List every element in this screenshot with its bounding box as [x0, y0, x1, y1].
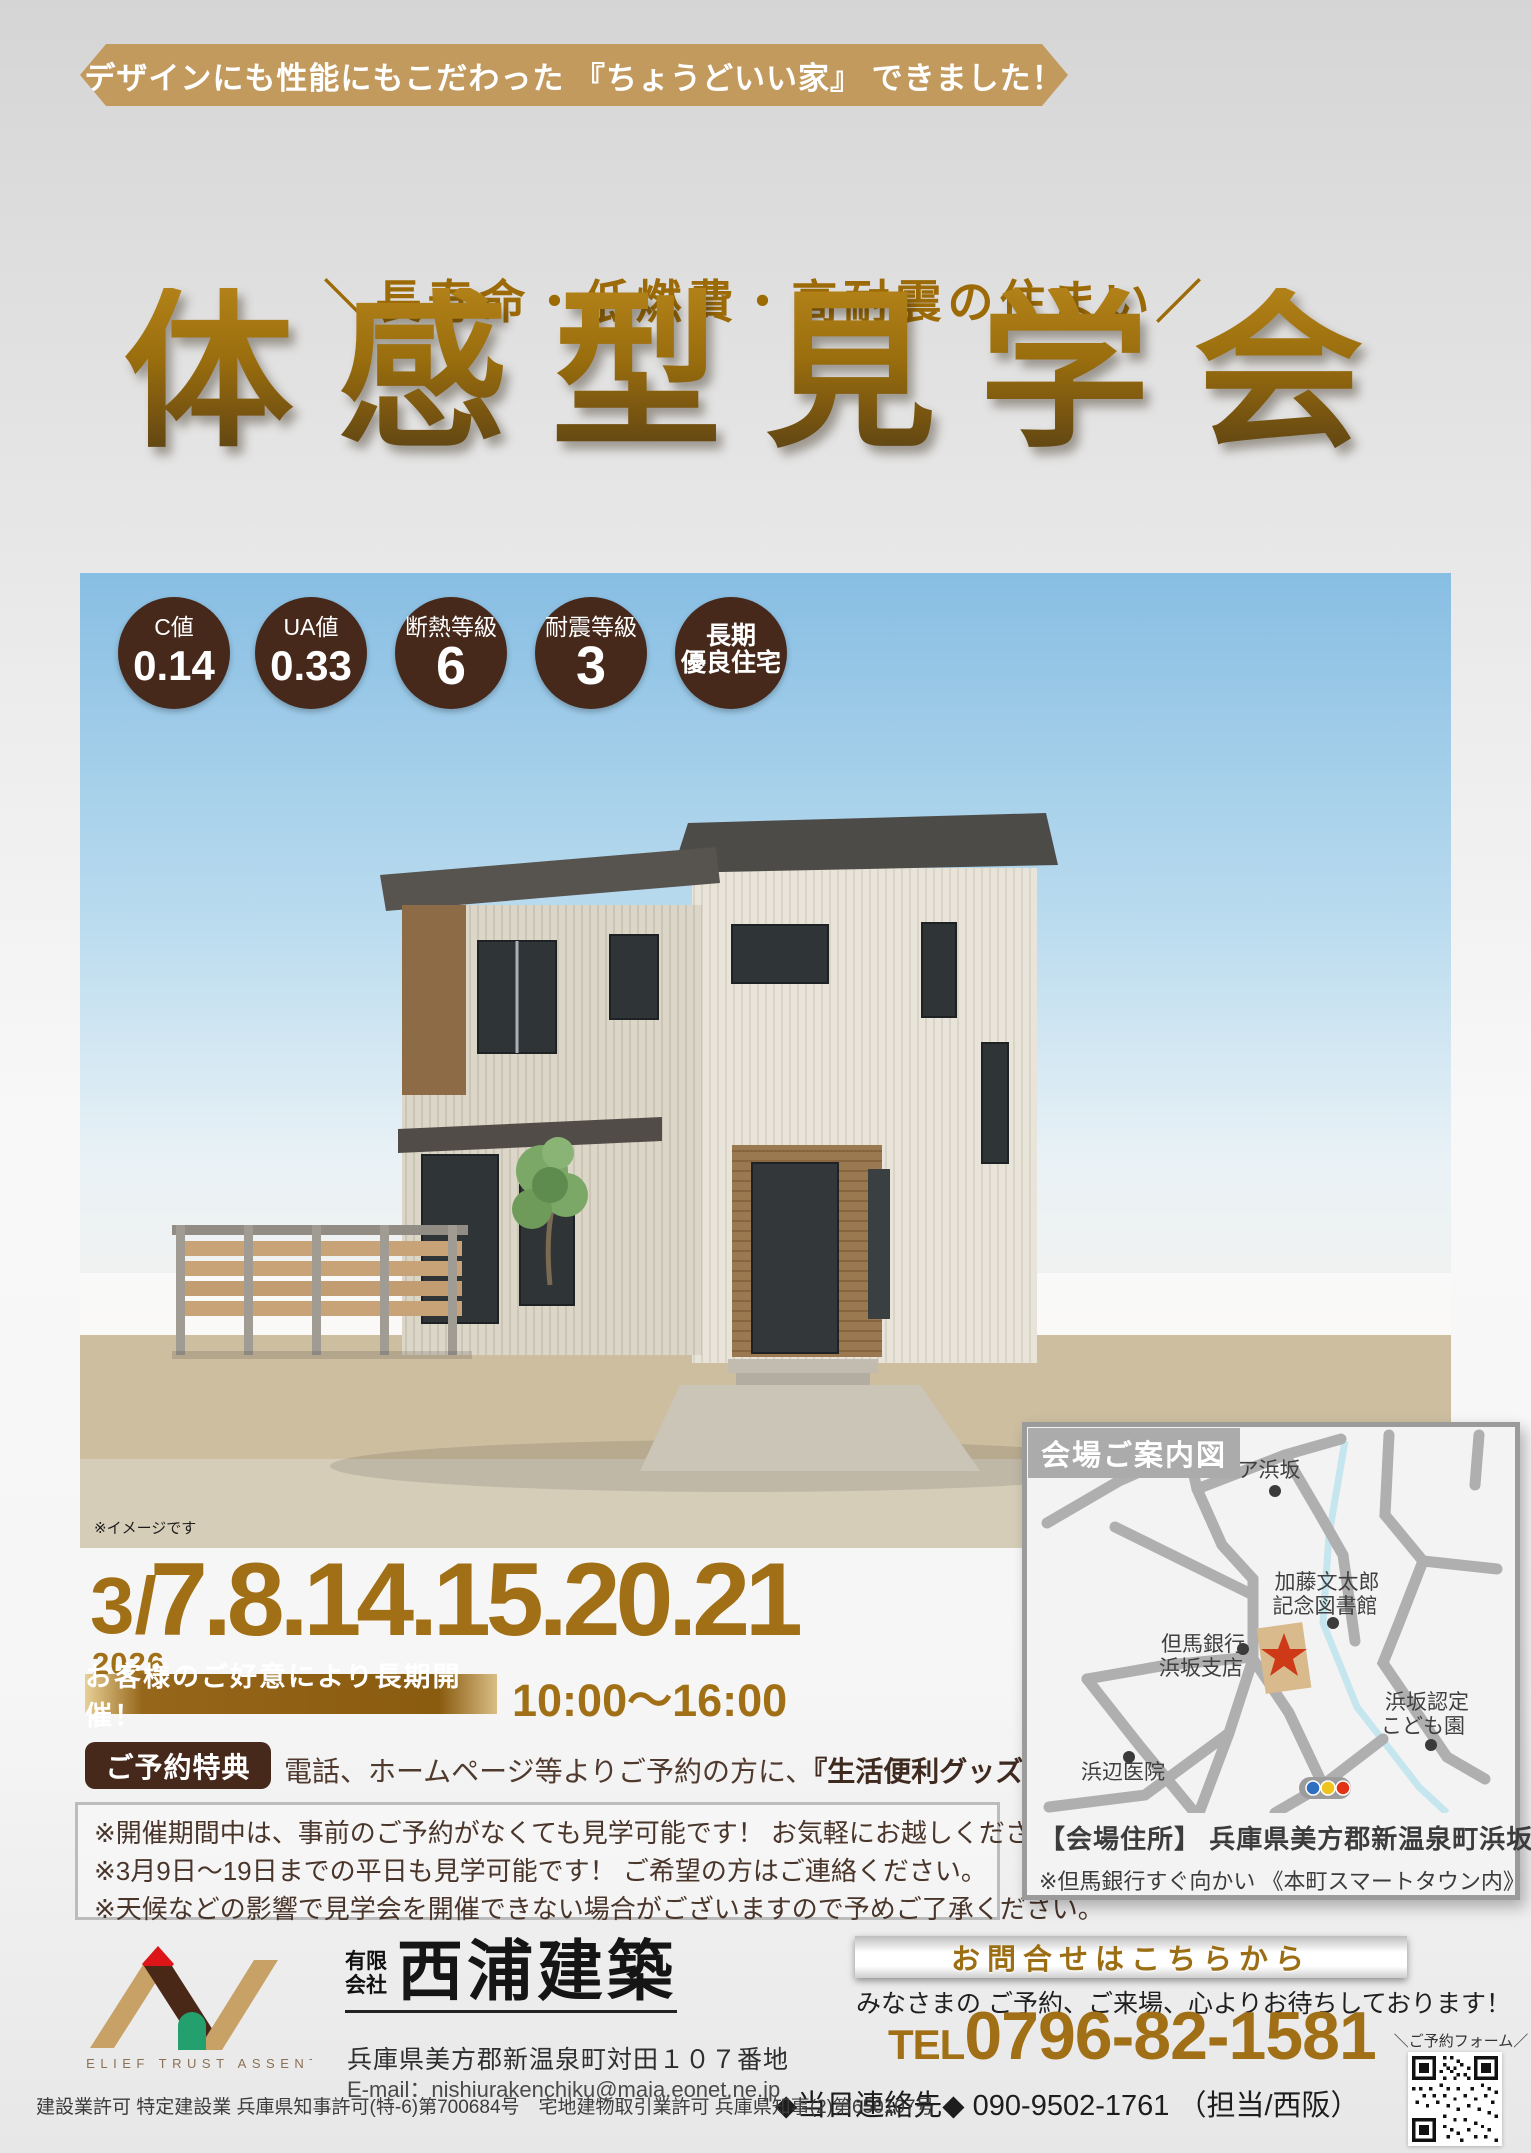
reservation-badge: ご予約特典 — [85, 1742, 271, 1789]
note-line: ※開催期間中は、事前のご予約がなくても見学可能です！ お気軽にお越しください。 — [94, 1814, 981, 1852]
company-prefix-2: 会社 — [345, 1974, 387, 1998]
map-label-bank-2: 浜坂支店 — [1159, 1657, 1243, 1680]
logo-green-door — [178, 2012, 206, 2050]
map-header-text: 会場ご案内図 — [1041, 1432, 1227, 1474]
badge-label: 長期 — [706, 623, 756, 649]
house-photo: ※イメージです C値 0.14 UA値 0.33 断熱等級 6 耐震等級 3 長… — [80, 573, 1451, 1548]
venue-address-value: 兵庫県美方郡新温泉町浜坂 — [1209, 1824, 1531, 1854]
note-line: ※天候などの影響で見学会を開催できない場合がございますので予めご了承ください。 — [94, 1890, 981, 1928]
badge-seismic: 耐震等級 3 — [535, 597, 647, 709]
company-prefix-1: 有限 — [345, 1950, 387, 1974]
map-label-clinic: 浜辺医院 — [1081, 1761, 1165, 1784]
top-ribbon-text: デザインにも性能にもこだわった 『ちょうどいい家』 できました！ — [84, 53, 1063, 98]
map-dot — [1425, 1739, 1437, 1751]
company-prefix: 有限 会社 — [345, 1950, 387, 1998]
logo-tagline: RELIEF TRUST ASSENT — [82, 2056, 312, 2071]
badge-insulation: 断熱等級 6 — [395, 597, 507, 709]
badge-long-term: 長期 優良住宅 — [675, 597, 787, 709]
tel-prefix: TEL — [888, 2021, 964, 2069]
company-logo: RELIEF TRUST ASSENT — [82, 1944, 312, 2077]
map-label-kato-1: 加藤文太郎 — [1275, 1571, 1380, 1594]
company-name-block: 有限 会社 西浦建築 — [345, 1938, 677, 2013]
reservation-qr-code — [1408, 2052, 1502, 2146]
event-time: 10:00〜16:00 — [512, 1664, 787, 1729]
map-label-kodomo-1: 浜坂認定 — [1385, 1691, 1469, 1714]
qr-label: ＼ご予約フォーム／ — [1392, 2030, 1530, 2051]
company-logo-mark: RELIEF TRUST ASSENT — [82, 1944, 312, 2072]
badge-value: 優良住宅 — [681, 651, 781, 676]
badge-value: 3 — [576, 639, 606, 693]
badge-c-value: C値 0.14 — [118, 597, 230, 709]
notes-box: ※開催期間中は、事前のご予約がなくても見学可能です！ お気軽にお越しください。 … — [75, 1802, 1000, 1920]
venue-map: ユートピア浜坂 加藤文太郎 記念図書館 但馬銀行 浜坂支店 浜坂認定 こども園 … — [1027, 1427, 1515, 1813]
badge-value: 6 — [436, 639, 466, 693]
photo-caption: ※イメージです — [94, 1517, 196, 1538]
contact-header-text: お問合せはこちらから — [951, 1936, 1311, 1978]
reservation-badge-text: ご予約特典 — [105, 1746, 250, 1786]
company-name: 西浦建築 — [397, 1938, 677, 2004]
venue-address: 【会場住所】 兵庫県美方郡新温泉町浜坂 ※但馬銀行すぐ向かい 《本町スマートタウ… — [1039, 1819, 1505, 1896]
note-line: ※3月9日〜19日までの平日も見学可能です！ ご希望の方はご連絡ください。 — [94, 1852, 981, 1890]
map-header: 会場ご案内図 — [1028, 1428, 1240, 1478]
venue-address-note: ※但馬銀行すぐ向かい 《本町スマートタウン内》 — [1039, 1864, 1505, 1896]
long-run-banner-text: お客様のご好意により長期開催！ — [85, 1655, 497, 1733]
reservation-text-pre: 電話、ホームページ等よりご予約の方に、 — [284, 1756, 813, 1787]
license-text: 建設業許可 特定建設業 兵庫県知事許可(特-6)第700684号 宅地建物取引業… — [36, 2092, 934, 2119]
badge-ua-value: UA値 0.33 — [255, 597, 367, 709]
map-dot — [1269, 1485, 1281, 1497]
venue-map-panel: ユートピア浜坂 加藤文太郎 記念図書館 但馬銀行 浜坂支店 浜坂認定 こども園 … — [1022, 1422, 1520, 1900]
map-label-kodomo-2: こども園 — [1381, 1715, 1465, 1738]
qr-code-graphic — [1412, 2056, 1498, 2142]
map-dot — [1327, 1617, 1339, 1629]
phone-number: TEL 0796-82-1581 — [888, 2002, 1376, 2070]
house-render — [80, 573, 1451, 1548]
venue-address-label: 【会場住所】 — [1039, 1824, 1201, 1854]
reservation-highlight: 『生活便利グッズ』 — [813, 1756, 1051, 1787]
event-days: 7.8.14.15.20.21 — [150, 1548, 798, 1652]
long-run-banner: お客様のご好意により長期開催！ — [85, 1674, 497, 1714]
flyer-poster: デザインにも性能にもこだわった 『ちょうどいい家』 できました！ ＼長寿命・低燃… — [0, 0, 1531, 2153]
top-ribbon: デザインにも性能にもこだわった 『ちょうどいい家』 できました！ — [80, 44, 1068, 106]
map-label-kato-2: 記念図書館 — [1273, 1595, 1378, 1618]
badge-value: 0.33 — [270, 645, 352, 687]
traffic-light-icon — [1299, 1777, 1351, 1799]
page-title: 体感型見学会 — [0, 288, 1531, 458]
contact-header-ribbon: お問合せはこちらから — [855, 1936, 1407, 1978]
badge-label: C値 — [154, 615, 194, 639]
badge-value: 0.14 — [133, 645, 215, 687]
company-address: 兵庫県美方郡新温泉町対田１０７番地 — [347, 2040, 789, 2076]
tel-number: 0796-82-1581 — [964, 2002, 1375, 2070]
map-label-bank-1: 但馬銀行 — [1161, 1633, 1245, 1656]
badge-label: UA値 — [284, 615, 339, 639]
